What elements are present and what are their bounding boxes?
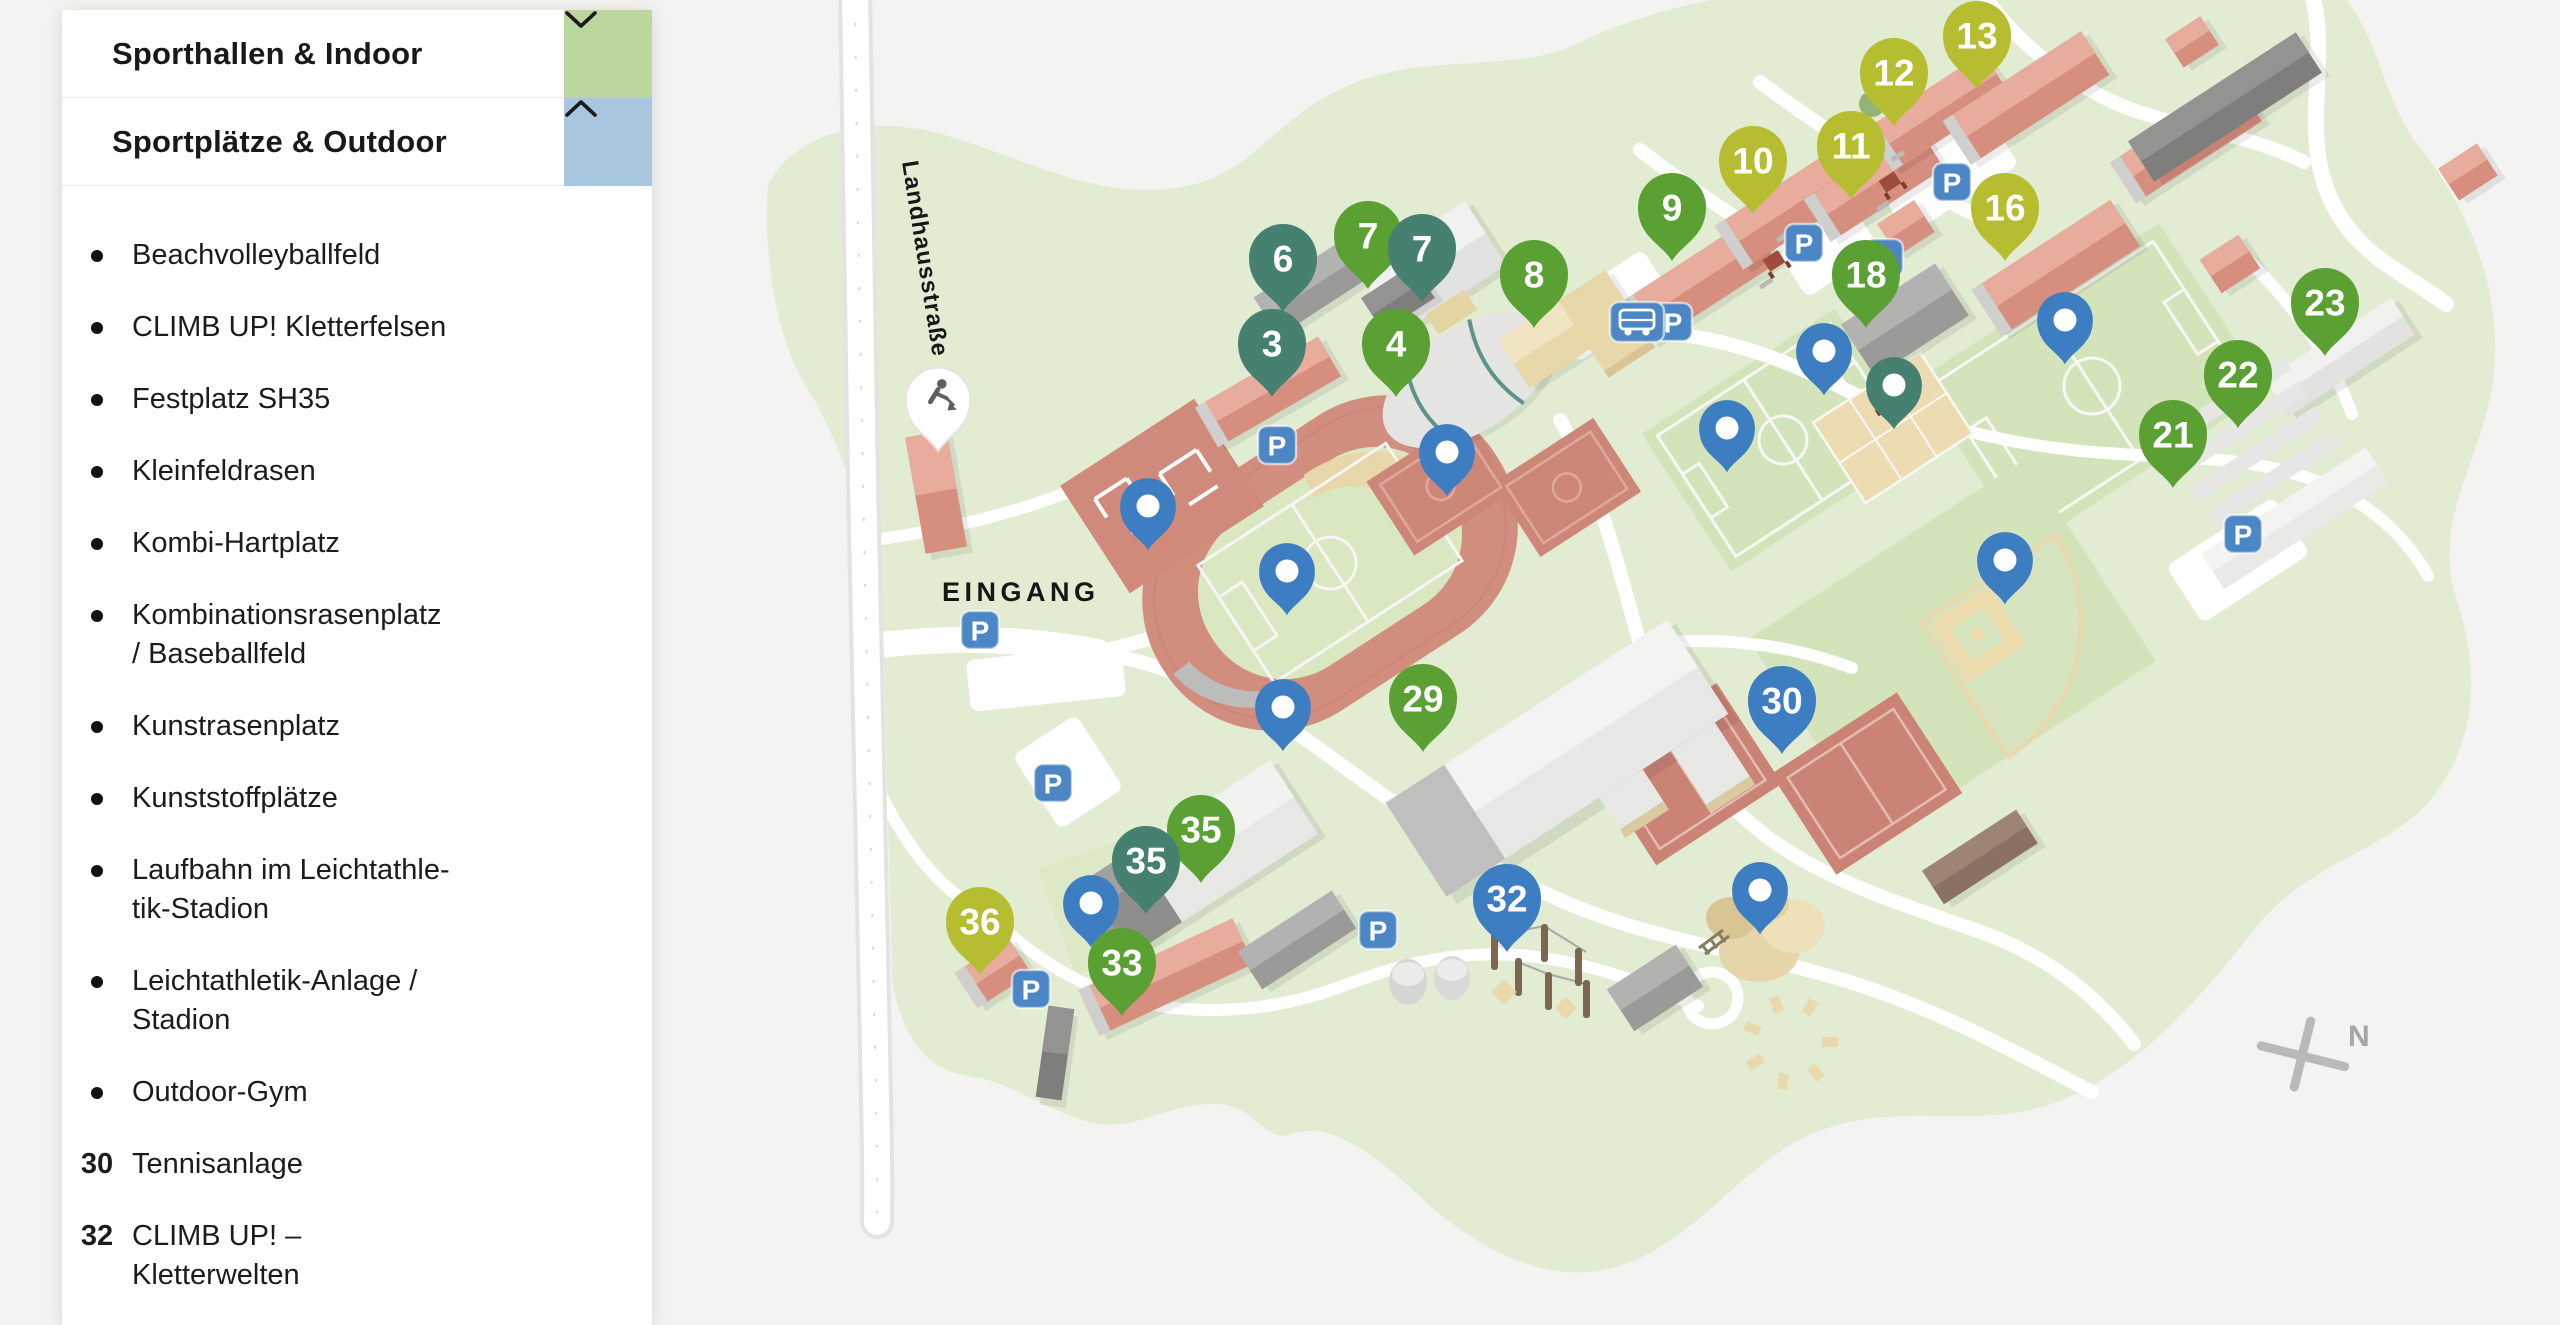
parking-icon: P [1258,426,1296,464]
bullet-dot [91,1087,103,1099]
parking-icon: P [1785,224,1823,262]
accordion-sportplaetze-outdoor[interactable]: Sportplätze & Outdoor [62,98,652,186]
chevron-up-icon[interactable] [564,98,652,186]
facility-label: Kombinationsrasenplatz / Baseballfeld [132,596,442,674]
svg-text:P: P [971,616,990,647]
landhausstrasse-road [855,0,877,1222]
facility-label: Kleinfeldrasen [132,452,316,491]
bullet-dot [91,721,103,733]
facility-label: CLIMB UP! – Kletterwelten [132,1217,301,1295]
facility-label: Tennisanlage [132,1145,303,1184]
terrain-inlet [2421,830,2560,1325]
bullet-dot [91,610,103,622]
bullet-dot [91,394,103,406]
facility-item[interactable]: Beachvolleyballfeld [62,236,622,275]
bullet-dot [91,865,103,877]
svg-text:P: P [1795,229,1814,260]
svg-text:9: 9 [1662,188,1683,229]
parking-icon: P [1034,764,1072,802]
svg-text:7: 7 [1412,229,1433,270]
parking-icon: P [961,611,999,649]
facility-label: CLIMB UP! Kletterfelsen [132,308,446,347]
svg-text:P: P [1022,975,1041,1006]
facilities-panel: Sporthallen & Indoor Sportplätze & Outdo… [62,10,652,1325]
facility-item[interactable]: Kombinationsrasenplatz / Baseballfeld [62,596,622,674]
bullet-dot [91,976,103,988]
facility-list: BeachvolleyballfeldCLIMB UP! Kletterfels… [62,186,652,1325]
bullet-dot [91,250,103,262]
campus-sport-map-page: N EINGANG Landhausstraße PPPPPPPPPP 1312… [0,0,2560,1325]
facility-number: 30 [81,1145,113,1184]
facility-item[interactable]: Kunstrasenplatz [62,707,622,746]
svg-text:13: 13 [1956,16,1997,57]
bullet-dot [91,322,103,334]
facility-item[interactable]: Outdoor-Gym [62,1073,622,1112]
svg-text:12: 12 [1873,53,1914,94]
facility-item[interactable]: Laufbahn im Leichtathle- tik-Stadion [62,851,622,929]
facility-label: Outdoor-Gym [132,1073,308,1112]
facility-item[interactable]: 30Tennisanlage [62,1145,622,1184]
svg-text:18: 18 [1845,255,1886,296]
accordion-label: Sportplätze & Outdoor [112,124,447,160]
svg-text:P: P [1044,769,1063,800]
facility-label: Kombi-Hartplatz [132,524,340,563]
accordion-label: Sporthallen & Indoor [112,36,423,72]
svg-text:32: 32 [1486,879,1527,920]
svg-text:P: P [2234,520,2253,551]
facility-label: Laufbahn im Leichtathle- tik-Stadion [132,851,450,929]
north-label: N [2348,1020,2370,1053]
svg-text:4: 4 [1386,324,1407,365]
facility-item[interactable]: Leichtathletik-Anlage / Stadion [62,962,622,1040]
svg-text:21: 21 [2152,415,2193,456]
svg-text:11: 11 [1831,126,1870,167]
svg-text:P: P [1268,431,1287,462]
svg-text:35: 35 [1125,841,1166,882]
facility-item[interactable]: 32CLIMB UP! – Kletterwelten [62,1217,622,1295]
svg-text:16: 16 [1984,188,2025,229]
svg-text:23: 23 [2304,283,2345,324]
svg-text:3: 3 [1262,324,1283,365]
svg-text:35: 35 [1180,810,1221,851]
svg-text:10: 10 [1732,141,1773,182]
parking-icon: P [1012,970,1050,1008]
facility-label: Kunststoffplätze [132,779,338,818]
svg-text:7: 7 [1358,216,1379,257]
bullet-dot [91,793,103,805]
facility-label: Kunstrasenplatz [132,707,340,746]
accordion-sporthallen-indoor[interactable]: Sporthallen & Indoor [62,10,652,98]
facility-item[interactable]: Kombi-Hartplatz [62,524,622,563]
parking-icon: P [2224,515,2262,553]
bus-stop-icon [1610,302,1664,342]
svg-text:P: P [1943,168,1962,199]
facility-item[interactable]: CLIMB UP! Kletterfelsen [62,308,622,347]
facility-item[interactable]: Festplatz SH35 [62,380,622,419]
svg-text:30: 30 [1761,681,1802,722]
entrance-label: EINGANG [942,577,1100,607]
facility-label: Leichtathletik-Anlage / Stadion [132,962,417,1040]
svg-text:P: P [1369,916,1388,947]
svg-text:36: 36 [959,902,1000,943]
svg-text:33: 33 [1101,943,1142,984]
facility-number: 32 [81,1217,113,1256]
svg-text:29: 29 [1402,679,1443,720]
chevron-down-icon[interactable] [564,10,652,98]
facility-item[interactable]: Kunststoffplätze [62,779,622,818]
facility-item[interactable]: Kleinfeldrasen [62,452,622,491]
svg-text:P: P [1664,308,1683,339]
svg-text:22: 22 [2217,355,2258,396]
parking-icon: P [1933,163,1971,201]
svg-text:6: 6 [1273,239,1294,280]
bullet-dot [91,538,103,550]
facility-label: Festplatz SH35 [132,380,330,419]
svg-text:8: 8 [1524,255,1545,296]
bullet-dot [91,466,103,478]
parking-icon: P [1359,911,1397,949]
facility-label: Beachvolleyballfeld [132,236,380,275]
